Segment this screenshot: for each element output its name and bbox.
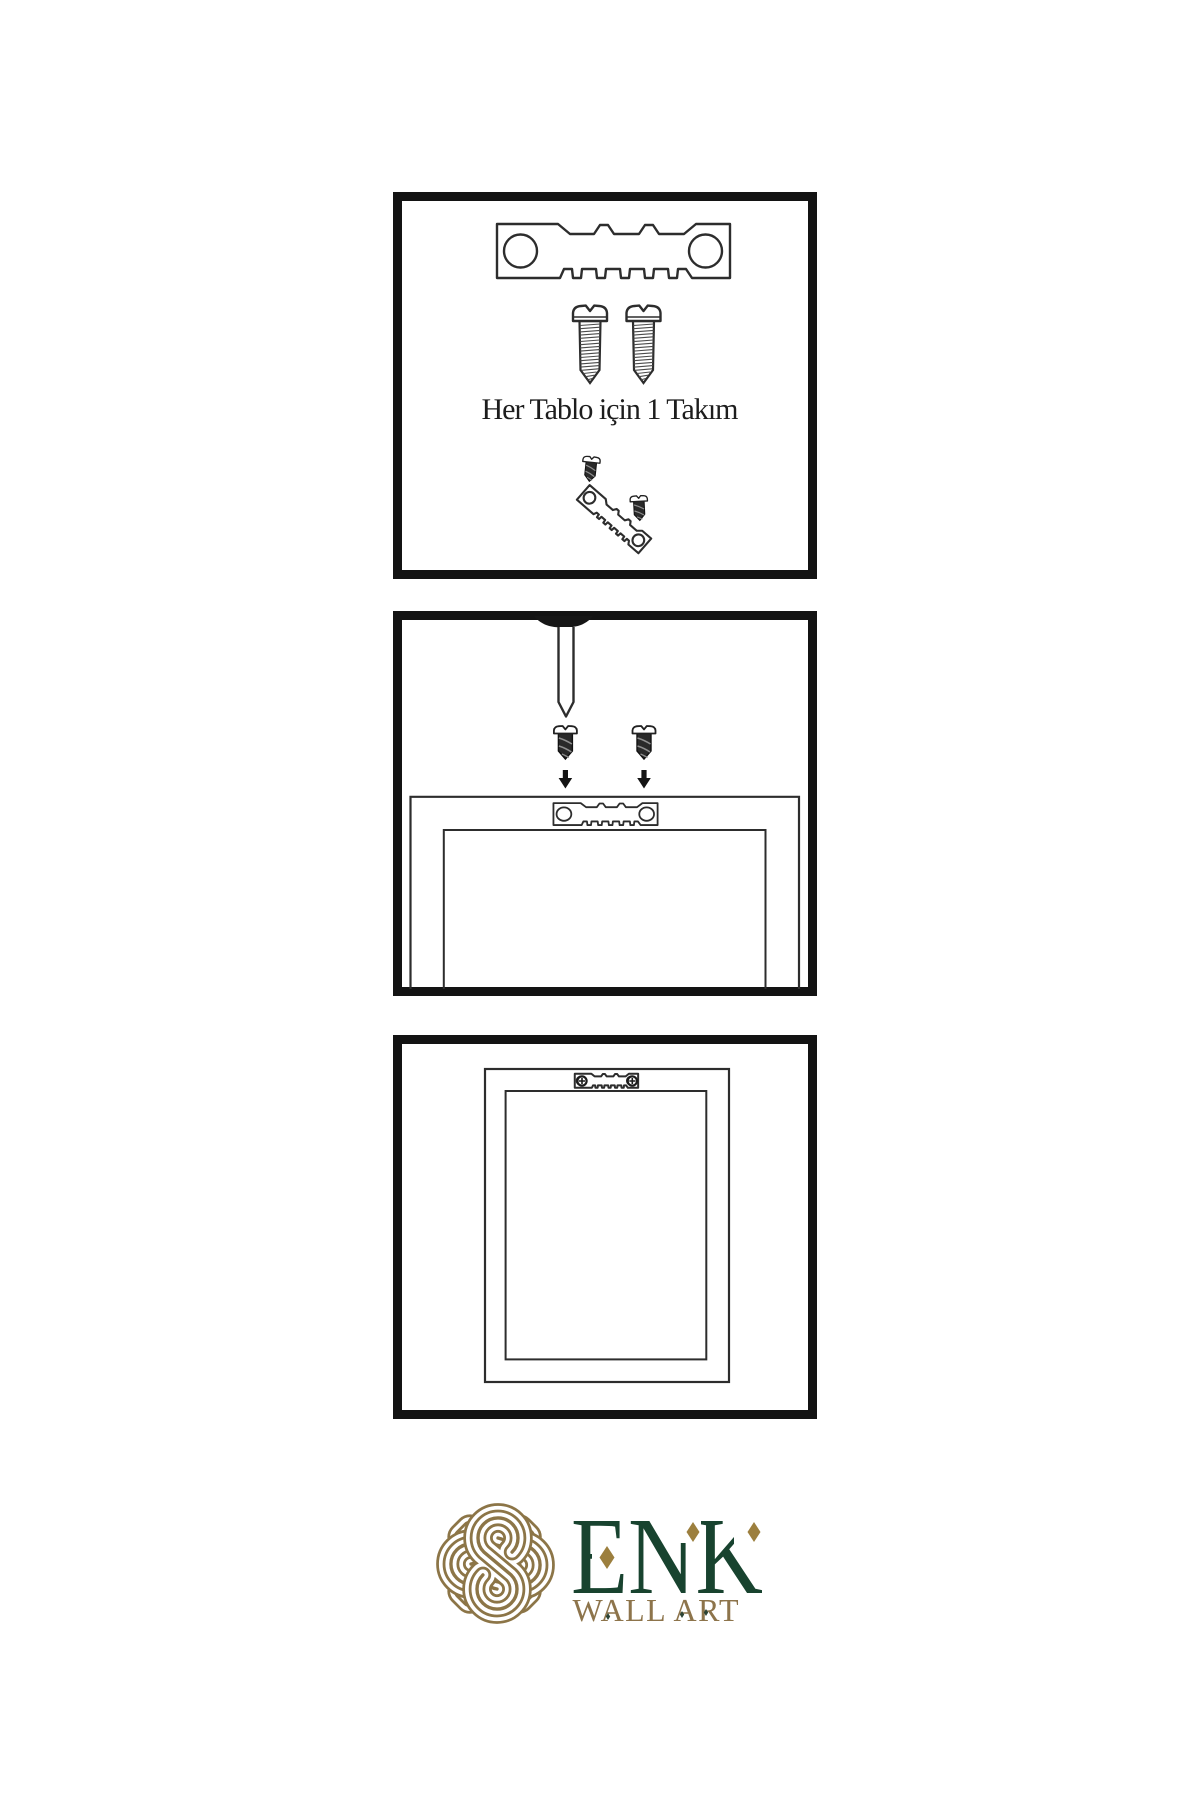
svg-text:WALL ART: WALL ART — [573, 1592, 739, 1628]
svg-text:Her Tablo için 1 Takım: Her Tablo için 1 Takım — [482, 393, 739, 426]
